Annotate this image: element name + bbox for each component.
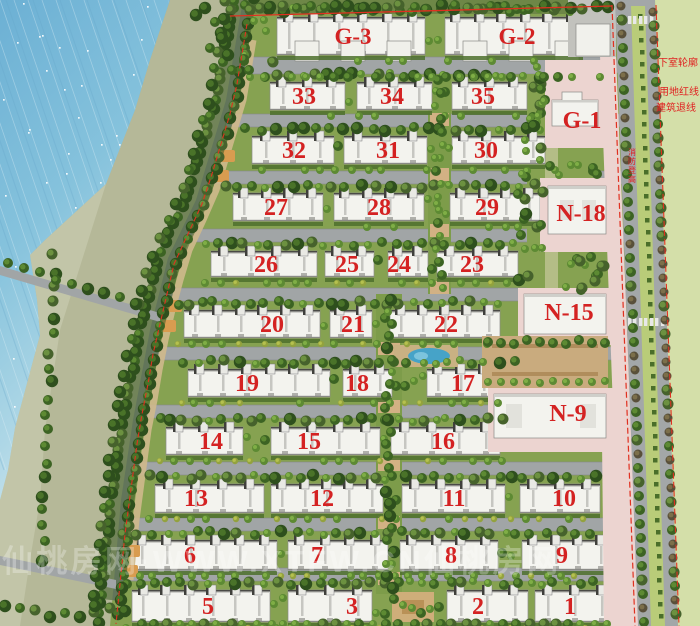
svg-text:35: 35 (471, 84, 495, 110)
svg-text:32: 32 (282, 138, 306, 164)
svg-text:1: 1 (564, 594, 576, 620)
svg-text:高: 高 (628, 174, 636, 184)
svg-text:13: 13 (184, 486, 208, 512)
svg-text:30: 30 (474, 138, 498, 164)
svg-text:34: 34 (380, 84, 404, 110)
svg-text:14: 14 (199, 429, 223, 455)
svg-text:11: 11 (443, 486, 466, 512)
svg-text:18: 18 (345, 371, 369, 397)
svg-text:下室轮廓: 下室轮廓 (658, 56, 698, 69)
svg-text:33: 33 (292, 84, 316, 110)
svg-text:10: 10 (552, 486, 576, 512)
svg-text:G-3: G-3 (334, 24, 371, 49)
svg-text:26: 26 (254, 252, 278, 278)
svg-text:5: 5 (202, 594, 214, 620)
svg-text:N-18: N-18 (556, 201, 605, 227)
svg-text:登: 登 (628, 165, 636, 175)
svg-text:15: 15 (297, 429, 321, 455)
svg-text:27: 27 (264, 195, 288, 221)
svg-text:24: 24 (387, 252, 411, 278)
svg-text:23: 23 (460, 252, 484, 278)
svg-text:31: 31 (376, 138, 400, 164)
svg-text:21: 21 (341, 312, 365, 338)
svg-text:防: 防 (628, 156, 636, 166)
svg-text:N-15: N-15 (544, 300, 593, 326)
svg-text:29: 29 (475, 195, 499, 221)
svg-text:2: 2 (472, 594, 484, 620)
svg-text:建筑退线: 建筑退线 (656, 101, 696, 114)
svg-text:20: 20 (260, 312, 284, 338)
svg-text:17: 17 (451, 371, 475, 397)
svg-text:22: 22 (434, 312, 458, 338)
svg-text:12: 12 (310, 486, 334, 512)
svg-text:消: 消 (628, 147, 636, 157)
svg-text:28: 28 (367, 195, 391, 221)
svg-text:16: 16 (431, 429, 455, 455)
svg-text:G-1: G-1 (563, 108, 602, 134)
svg-text:3: 3 (346, 594, 358, 620)
svg-text:N-9: N-9 (549, 401, 586, 427)
svg-text:19: 19 (235, 371, 259, 397)
svg-text:仙桃房网·WWW.XTFW.CN仙桃房网: 仙桃房网·WWW.XTFW.CN仙桃房网 (2, 544, 558, 579)
svg-text:G-2: G-2 (498, 24, 535, 49)
svg-text:用地红线: 用地红线 (659, 85, 699, 98)
svg-text:25: 25 (335, 252, 359, 278)
